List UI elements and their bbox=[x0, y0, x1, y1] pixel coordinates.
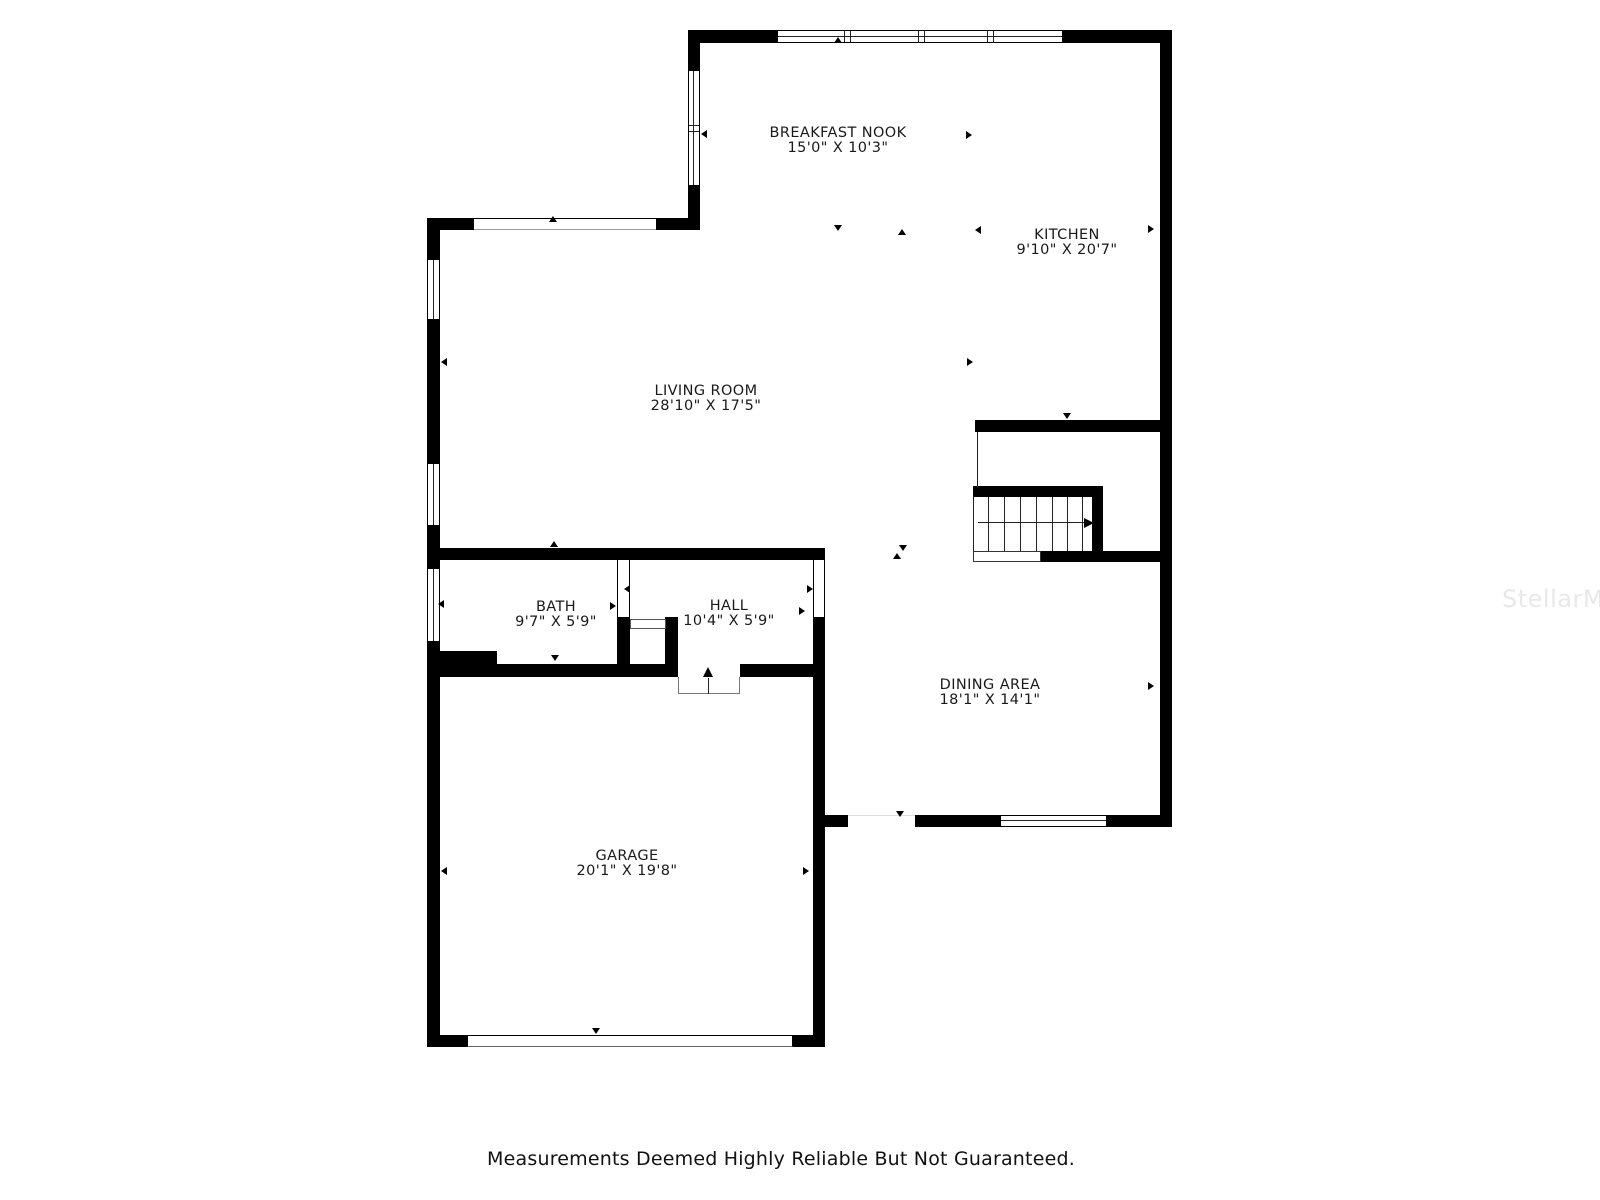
window-center-line bbox=[433, 260, 434, 319]
stairs-direction-line bbox=[978, 522, 1086, 523]
stair-tread bbox=[1036, 497, 1037, 551]
wall bbox=[1107, 815, 1172, 827]
wall bbox=[427, 218, 440, 259]
room-dims: 9'10" X 20'7" bbox=[1016, 243, 1117, 258]
closet-shelf bbox=[630, 619, 666, 629]
passage-opening-dining bbox=[848, 815, 915, 827]
dimension-tick bbox=[551, 655, 559, 661]
stair-tread bbox=[1067, 497, 1068, 551]
stair-landing-edge bbox=[977, 432, 978, 488]
stair-tread bbox=[1052, 497, 1053, 551]
wall bbox=[427, 1035, 467, 1047]
entry-door-swing bbox=[678, 677, 740, 694]
garage-door bbox=[467, 1035, 793, 1047]
wall bbox=[427, 320, 440, 463]
stair-tread bbox=[1004, 497, 1005, 551]
entry-door-arrow-icon bbox=[703, 667, 713, 677]
wall bbox=[1160, 30, 1172, 827]
window-center-line bbox=[778, 36, 1062, 37]
dimension-tick bbox=[799, 607, 805, 615]
dimension-tick bbox=[1064, 37, 1072, 43]
window-band bbox=[474, 218, 656, 230]
room-dims: 20'1" X 19'8" bbox=[576, 864, 677, 879]
window-center-line bbox=[693, 71, 694, 185]
wall bbox=[427, 664, 440, 1047]
room-name: BATH bbox=[515, 600, 597, 615]
dimension-tick bbox=[896, 811, 904, 817]
room-dims: 28'10" X 17'5" bbox=[651, 399, 762, 414]
room-label-kitchen: KITCHEN 9'10" X 20'7" bbox=[1016, 228, 1117, 258]
room-dims: 10'4" X 5'9" bbox=[683, 614, 774, 629]
wall bbox=[656, 218, 700, 230]
dimension-tick bbox=[438, 600, 444, 608]
dimension-tick bbox=[441, 358, 447, 366]
dimension-tick bbox=[1148, 225, 1154, 233]
wall bbox=[688, 30, 777, 43]
room-label-garage: GARAGE 20'1" X 19'8" bbox=[576, 849, 677, 879]
window bbox=[688, 70, 700, 186]
window-center-line bbox=[1001, 820, 1106, 821]
floor-plan: BREAKFAST NOOK 15'0" X 10'3" KITCHEN 9'1… bbox=[0, 0, 1600, 1200]
dimension-tick bbox=[893, 553, 901, 559]
window-mullion bbox=[850, 31, 851, 42]
door-opening-hall-dining bbox=[813, 560, 825, 617]
room-dims: 9'7" X 5'9" bbox=[515, 615, 597, 630]
room-name: HALL bbox=[683, 599, 774, 614]
wall bbox=[688, 30, 700, 72]
window-center-line bbox=[433, 569, 434, 641]
window-mullion bbox=[689, 131, 699, 132]
disclaimer-text: Measurements Deemed Highly Reliable But … bbox=[487, 1148, 1075, 1170]
dimension-tick bbox=[592, 1028, 600, 1034]
watermark: StellarMLS bbox=[1502, 585, 1600, 613]
dimension-tick bbox=[1063, 413, 1071, 419]
window-mullion bbox=[987, 31, 988, 42]
stair-tread bbox=[1020, 497, 1021, 551]
dimension-tick bbox=[834, 225, 842, 231]
dimension-tick bbox=[624, 585, 630, 593]
room-label-bath: BATH 9'7" X 5'9" bbox=[515, 600, 597, 630]
dimension-tick bbox=[701, 130, 707, 138]
wall bbox=[1063, 30, 1172, 43]
window bbox=[1000, 815, 1107, 827]
stairs-wall bbox=[1040, 551, 1172, 562]
window-mullion bbox=[689, 125, 699, 126]
wall bbox=[813, 664, 825, 1047]
window-center-line bbox=[433, 464, 434, 525]
room-dims: 15'0" X 10'3" bbox=[770, 141, 907, 156]
window bbox=[427, 259, 440, 320]
dimension-tick bbox=[898, 229, 906, 235]
dimension-tick bbox=[967, 358, 973, 366]
stairs-left-edge bbox=[973, 497, 974, 552]
stair-tread bbox=[1082, 497, 1083, 551]
dimension-tick bbox=[966, 131, 972, 139]
room-label-hall: HALL 10'4" X 5'9" bbox=[683, 599, 774, 629]
window bbox=[777, 30, 1063, 43]
dimension-tick bbox=[899, 545, 907, 551]
room-name: LIVING ROOM bbox=[651, 384, 762, 399]
wall bbox=[793, 1035, 825, 1047]
window-mullion bbox=[844, 31, 845, 42]
window-mullion bbox=[918, 31, 919, 42]
window bbox=[427, 463, 440, 526]
wall bbox=[915, 815, 1000, 827]
stairs-direction-arrow-icon bbox=[1084, 518, 1094, 528]
dimension-tick bbox=[549, 216, 557, 222]
dimension-tick bbox=[1148, 682, 1154, 690]
wall bbox=[427, 526, 440, 568]
dimension-tick bbox=[803, 867, 809, 875]
wall bbox=[427, 548, 825, 560]
room-name: KITCHEN bbox=[1016, 228, 1117, 243]
stair-tread bbox=[988, 497, 989, 551]
window-mullion bbox=[993, 31, 994, 42]
wall bbox=[825, 815, 848, 827]
dimension-tick bbox=[975, 226, 981, 234]
window-mullion bbox=[924, 31, 925, 42]
dimension-tick bbox=[550, 541, 558, 547]
dimension-tick bbox=[807, 585, 813, 593]
dimension-tick bbox=[593, 670, 601, 676]
room-dims: 18'1" X 14'1" bbox=[939, 693, 1040, 708]
room-label-dining-area: DINING AREA 18'1" X 14'1" bbox=[939, 678, 1040, 708]
room-label-breakfast-nook: BREAKFAST NOOK 15'0" X 10'3" bbox=[770, 126, 907, 156]
room-name: GARAGE bbox=[576, 849, 677, 864]
dimension-tick bbox=[441, 867, 447, 875]
room-name: BREAKFAST NOOK bbox=[770, 126, 907, 141]
entry-door-arrow-stem bbox=[708, 678, 709, 694]
dimension-tick bbox=[834, 37, 842, 43]
under-stair-strip bbox=[973, 551, 1041, 562]
dimension-tick bbox=[610, 602, 616, 610]
room-name: DINING AREA bbox=[939, 678, 1040, 693]
wall bbox=[975, 420, 1160, 432]
stairs-wall bbox=[973, 486, 1103, 497]
room-label-living-room: LIVING ROOM 28'10" X 17'5" bbox=[651, 384, 762, 414]
dimension-tick bbox=[749, 550, 757, 556]
